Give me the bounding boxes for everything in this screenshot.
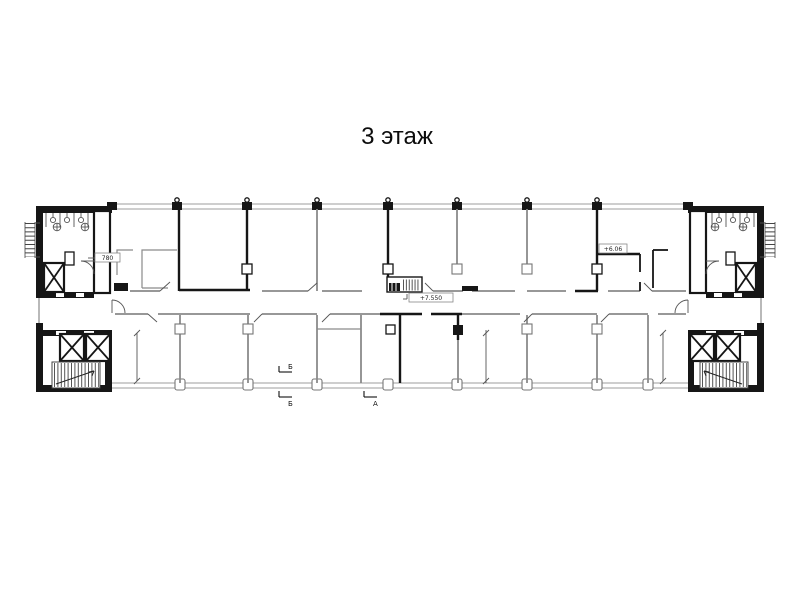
- column-icon: [383, 264, 393, 274]
- toilet-icon: [716, 213, 749, 223]
- stairs-icon: [52, 362, 100, 388]
- section-marker-b-top: Б: [279, 363, 293, 372]
- corridor-fixture: [462, 286, 478, 291]
- elevator-shaft-icon: [44, 263, 64, 292]
- right-core: [660, 206, 775, 392]
- column-icon: [242, 264, 252, 274]
- floor-plan-drawing: 3 этаж: [0, 0, 800, 600]
- elevation-label-right: +6.06: [599, 244, 627, 253]
- lower-room-partitions: [175, 314, 648, 384]
- shaft-block: [114, 283, 128, 291]
- shaft-wall: [690, 211, 706, 293]
- column-icon: [386, 325, 395, 334]
- corridor-walls: [115, 291, 686, 314]
- toilet-icon: [50, 213, 83, 223]
- section-marker-b-bottom: Б: [279, 391, 293, 408]
- duct-icon: [726, 252, 735, 265]
- door-swing: [675, 300, 688, 313]
- elevation-label: +7.550: [420, 295, 442, 302]
- section-marker-a: А: [364, 391, 378, 408]
- elevator-shaft-icon: [86, 334, 110, 361]
- door-swing: [706, 261, 719, 274]
- column-icon: [522, 324, 532, 334]
- column-icon: [175, 324, 185, 334]
- shaft-wall: [94, 211, 110, 293]
- page-title: 3 этаж: [361, 123, 433, 150]
- duct-icon: [65, 252, 74, 265]
- left-core: 780: [25, 206, 140, 392]
- column-icon: [453, 325, 463, 335]
- corridor-stair-feature: +7.550: [387, 277, 453, 302]
- sink-icon: [711, 223, 747, 231]
- room-label: 780: [102, 255, 114, 262]
- elevator-shaft-icon: [716, 334, 740, 361]
- elevator-shaft-icon: [60, 334, 84, 361]
- sink-icon: [53, 223, 89, 231]
- column-icon: [452, 264, 462, 274]
- column-icon: [592, 324, 602, 334]
- column-icon: [522, 264, 532, 274]
- floor-plan-page: 3 этаж: [0, 0, 800, 600]
- elevator-shaft-icon: [690, 334, 714, 361]
- door-swing: [112, 300, 125, 313]
- elevator-shaft-icon: [736, 263, 756, 292]
- svg-text:Б: Б: [288, 363, 293, 371]
- column-icon: [592, 264, 602, 274]
- section-markers: Б Б А: [279, 363, 378, 408]
- svg-text:Б: Б: [288, 400, 293, 408]
- top-facade-wall: [107, 198, 693, 210]
- svg-text:А: А: [373, 400, 378, 408]
- stairs-icon: [700, 362, 748, 388]
- door-swing: [81, 261, 94, 274]
- svg-text:+6.06: +6.06: [604, 246, 623, 253]
- column-icon: [243, 324, 253, 334]
